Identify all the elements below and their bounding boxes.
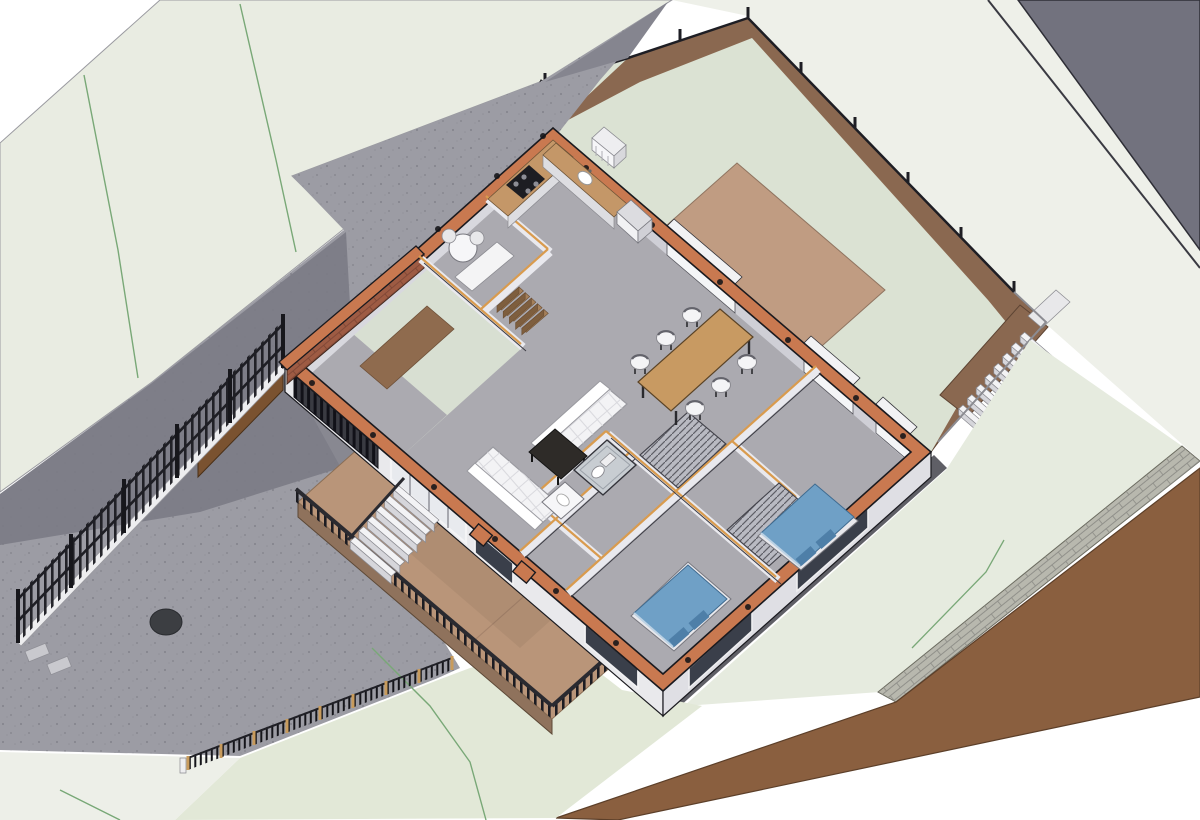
render-viewport[interactable]	[0, 0, 1200, 820]
gate-post-white	[180, 758, 186, 773]
utility-chair	[470, 231, 484, 245]
site-plan-3d-view[interactable]	[0, 0, 1200, 820]
manhole-cover	[150, 609, 182, 635]
faucet	[588, 169, 591, 172]
utility-chair	[442, 229, 456, 243]
